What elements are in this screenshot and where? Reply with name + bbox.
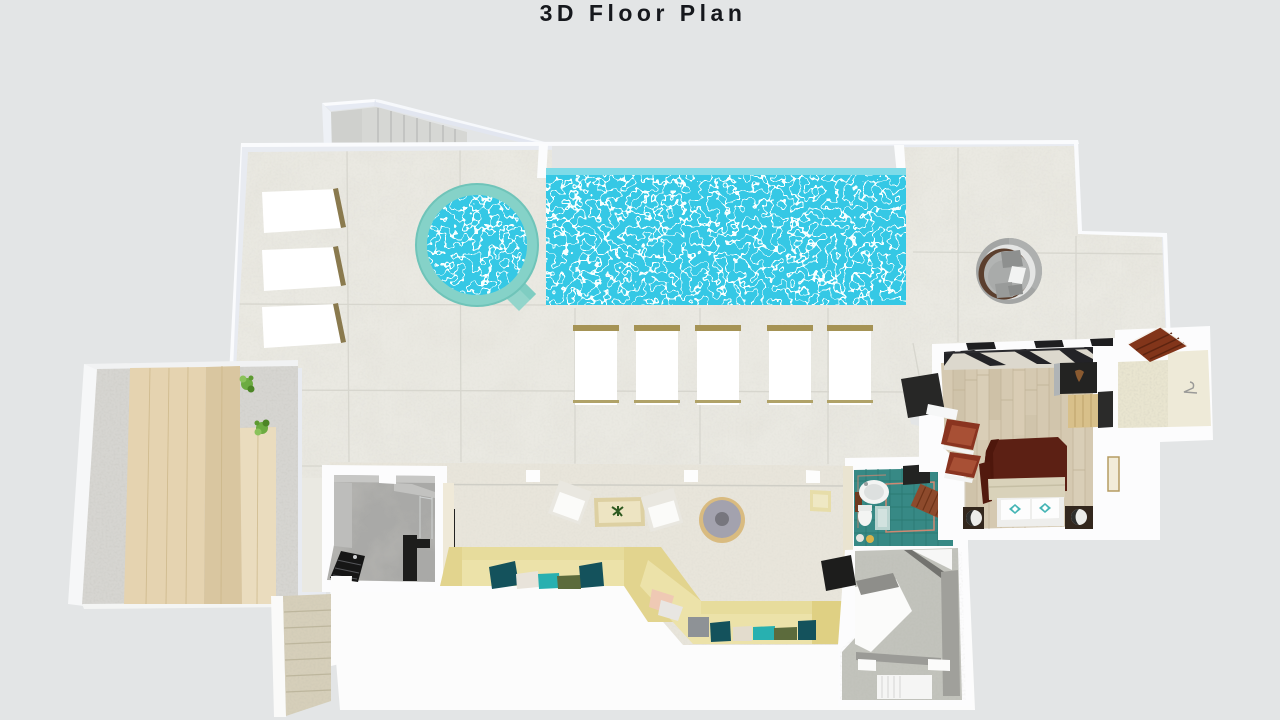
- svg-text:3D Floor Plan: 3D Floor Plan: [540, 0, 747, 26]
